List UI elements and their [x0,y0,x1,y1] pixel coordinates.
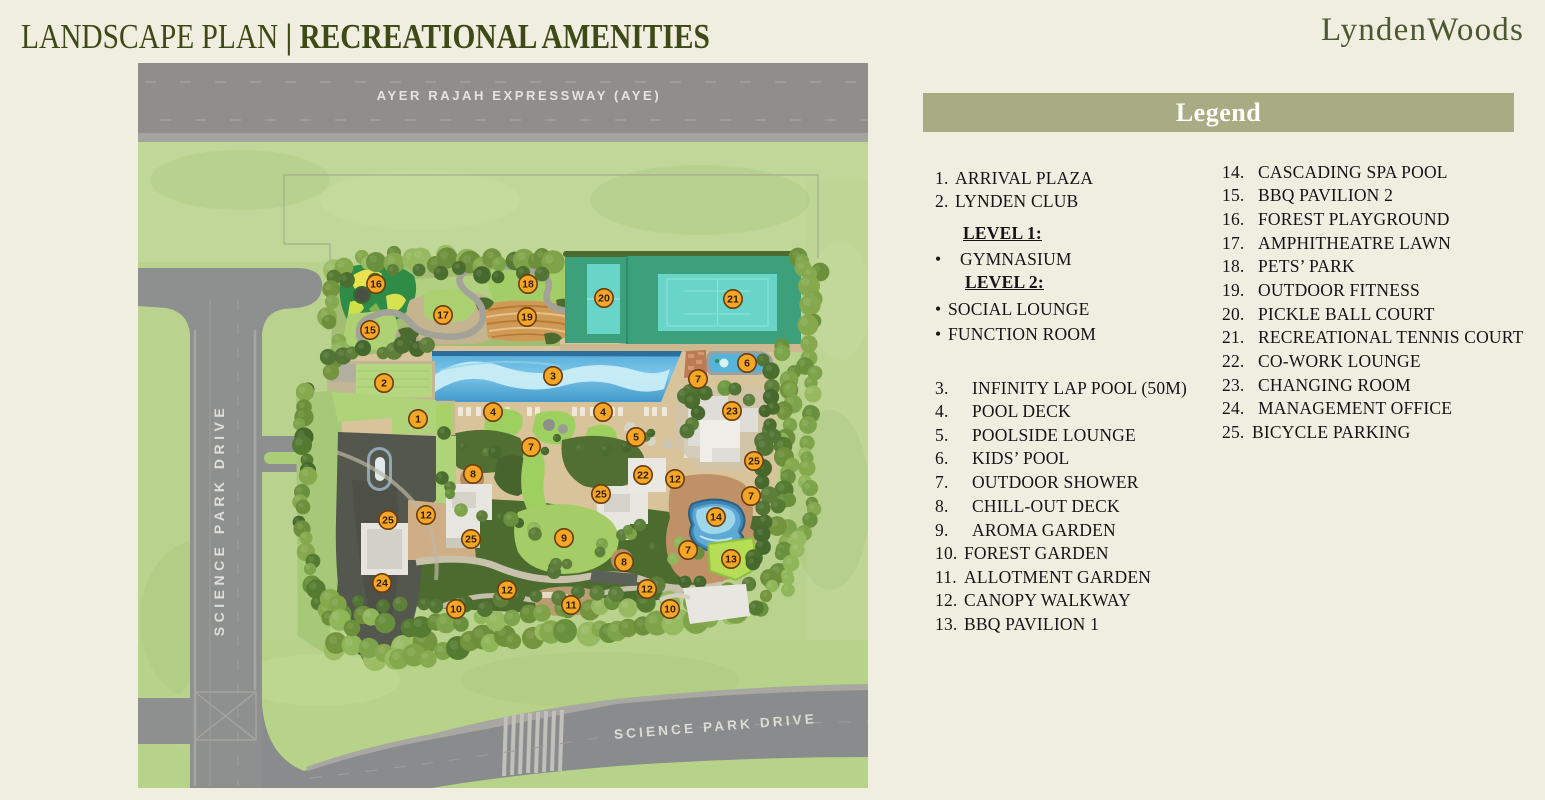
svg-text:12: 12 [641,584,653,596]
svg-text:2: 2 [381,378,387,390]
svg-text:19: 19 [521,312,533,324]
svg-text:4: 4 [600,407,606,419]
svg-text:7: 7 [528,442,534,454]
svg-text:22: 22 [637,470,649,482]
svg-text:13: 13 [725,554,737,566]
svg-text:8: 8 [470,469,476,481]
svg-text:SCIENCE PARK DRIVE: SCIENCE PARK DRIVE [211,404,227,636]
svg-text:23: 23 [726,406,738,418]
svg-text:7: 7 [748,491,754,503]
svg-text:10: 10 [664,604,676,616]
svg-text:25: 25 [382,515,394,527]
svg-text:8: 8 [621,557,627,569]
svg-text:5: 5 [633,432,639,444]
svg-text:25: 25 [595,489,607,501]
svg-text:12: 12 [669,474,681,486]
svg-text:25: 25 [465,534,477,546]
svg-text:24: 24 [376,578,388,590]
svg-text:17: 17 [437,310,449,322]
svg-text:18: 18 [522,279,534,291]
svg-text:7: 7 [695,374,701,386]
svg-text:9: 9 [561,533,567,545]
svg-text:12: 12 [420,510,432,522]
svg-text:20: 20 [598,293,610,305]
svg-text:6: 6 [744,358,750,370]
svg-text:21: 21 [727,294,739,306]
svg-text:14: 14 [710,512,722,524]
svg-text:AYER RAJAH EXPRESSWAY (AYE): AYER RAJAH EXPRESSWAY (AYE) [377,88,662,103]
svg-text:11: 11 [565,600,576,612]
svg-text:10: 10 [450,604,462,616]
svg-text:12: 12 [501,585,513,597]
svg-text:7: 7 [685,545,691,557]
svg-text:16: 16 [370,279,382,291]
svg-text:4: 4 [490,407,496,419]
svg-text:3: 3 [550,371,556,383]
svg-text:15: 15 [364,325,376,337]
svg-text:25: 25 [748,456,760,468]
svg-text:1: 1 [415,414,421,426]
